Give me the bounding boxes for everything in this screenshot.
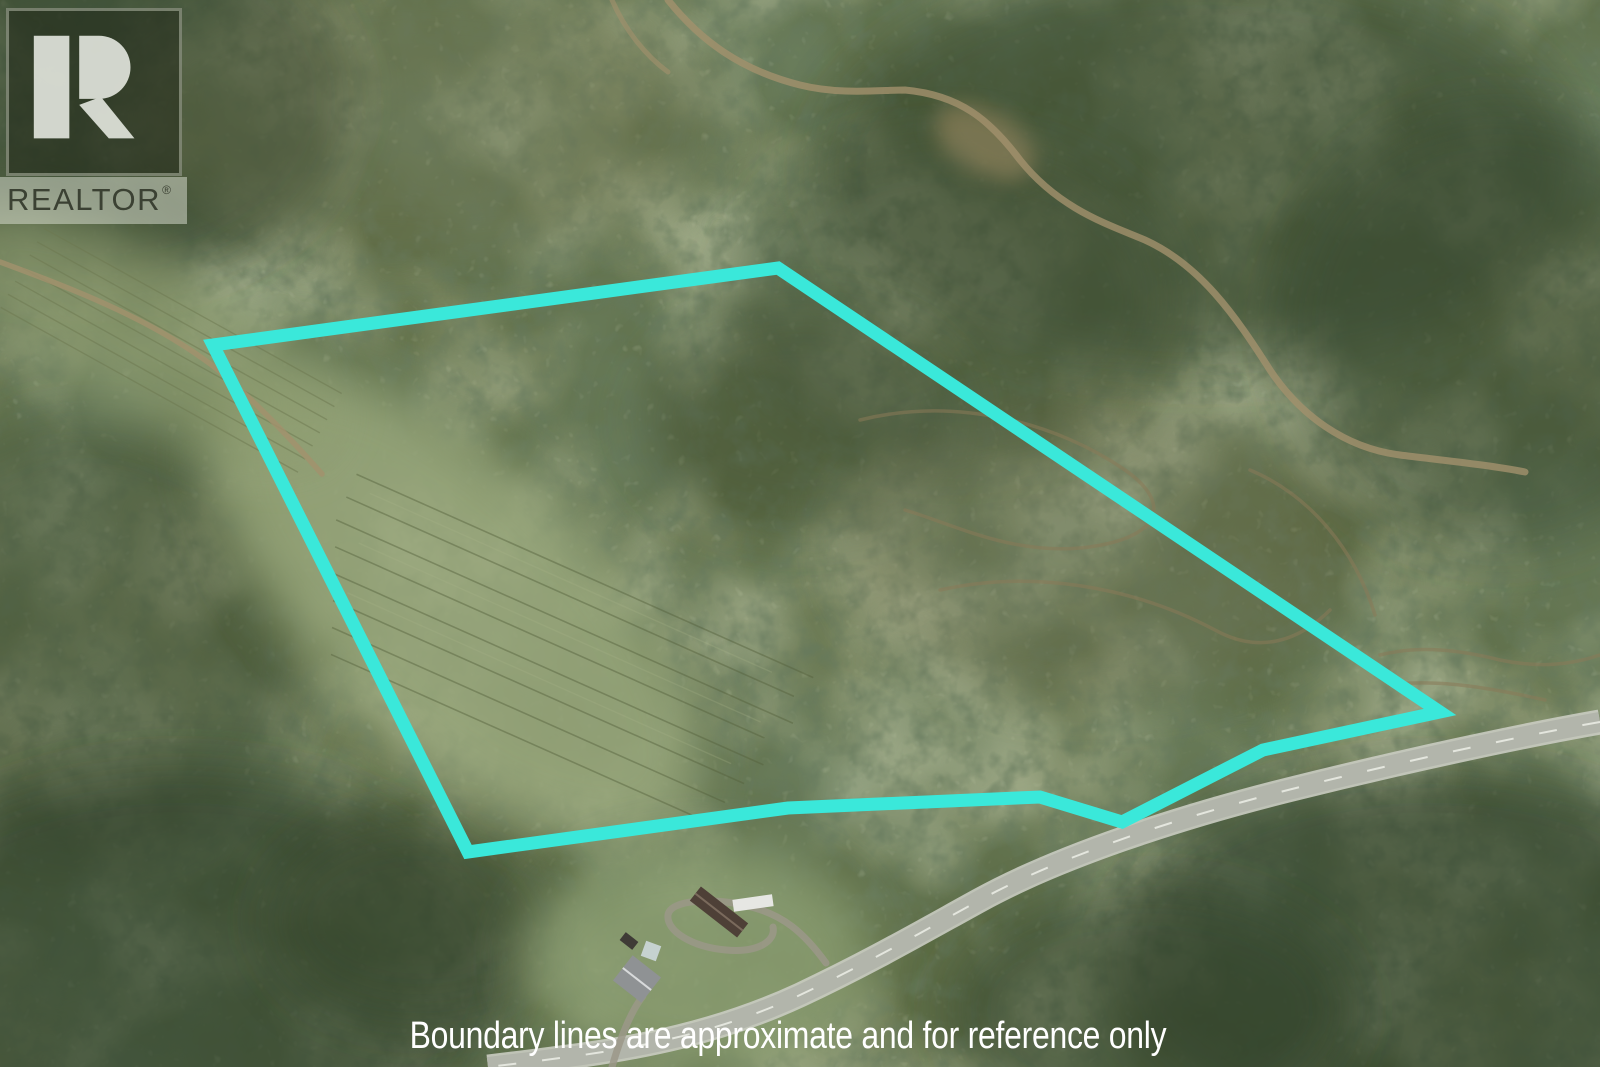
realtor-logo-box xyxy=(6,8,182,176)
realtor-watermark: REALTOR® xyxy=(0,0,187,224)
realtor-wordmark-text: REALTOR xyxy=(7,184,161,215)
realtor-wordmark: REALTOR® xyxy=(0,177,187,224)
property-boundary-line xyxy=(213,268,1440,852)
boundary-overlay xyxy=(0,0,1600,1067)
listing-aerial-image: REALTOR® Boundary lines are approximate … xyxy=(0,0,1600,1067)
realtor-r-icon xyxy=(19,18,169,166)
boundary-disclaimer: Boundary lines are approximate and for r… xyxy=(116,1015,1460,1058)
registered-trademark-symbol: ® xyxy=(162,184,171,196)
